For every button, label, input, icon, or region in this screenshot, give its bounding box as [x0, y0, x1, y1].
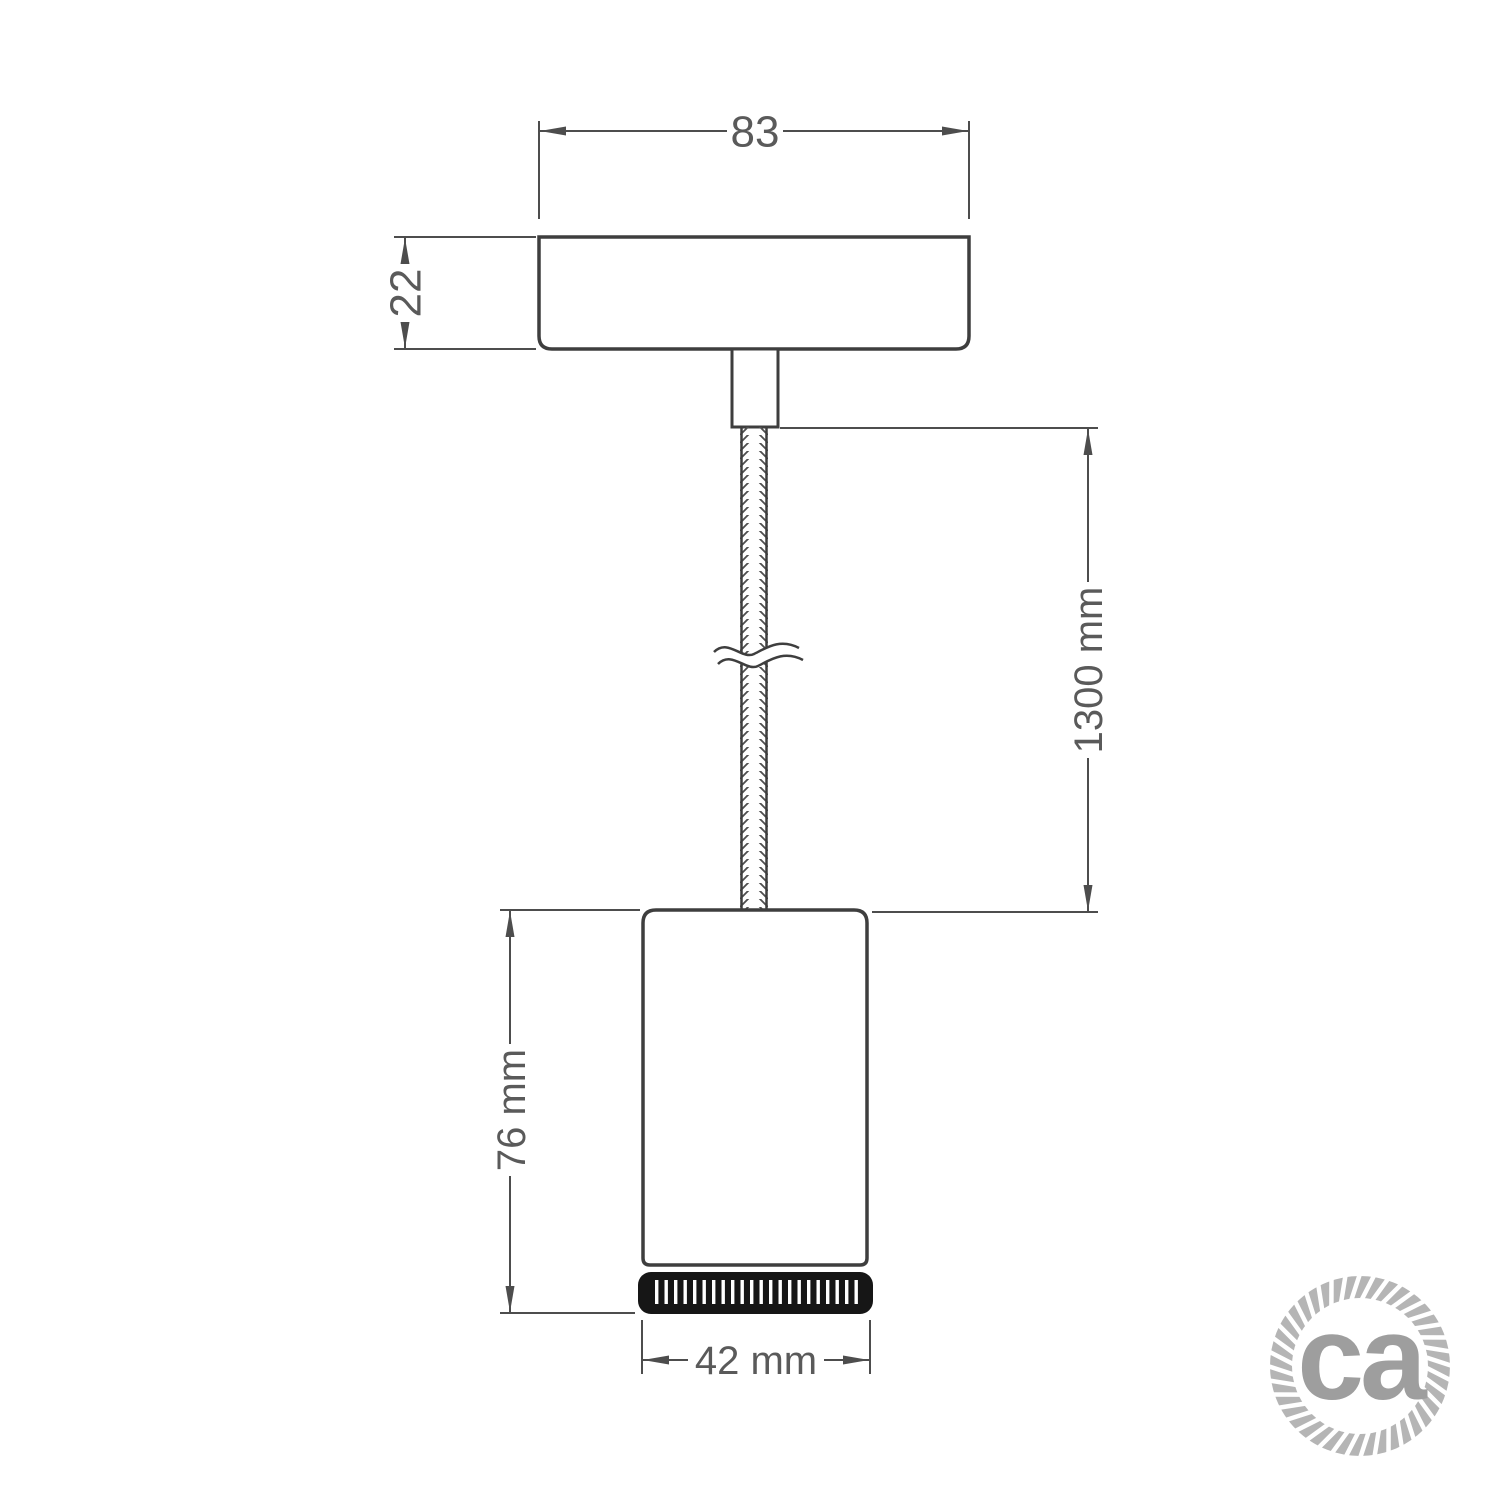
dim-label-canopy-width: 83 [731, 107, 780, 156]
pendant-lamp-dimension-diagram: 83 22 1300 mm 76 mm 42 m [0, 0, 1500, 1500]
dim-label-spotlight-width: 42 mm [695, 1339, 817, 1383]
ceiling-canopy [539, 237, 969, 349]
dim-canopy-height: 22 [381, 237, 536, 349]
logo-text: ca [1297, 1291, 1428, 1425]
dim-cable-length: 1300 mm [780, 428, 1111, 912]
knurled-ring [638, 1272, 873, 1314]
cable-gland [732, 349, 778, 427]
brand-logo: ca [1264, 1270, 1456, 1462]
dim-label-spotlight-height: 76 mm [490, 1049, 534, 1171]
braided-cable [740, 427, 768, 912]
technical-drawing-canvas: 83 22 1300 mm 76 mm 42 m [0, 0, 1500, 1500]
dim-label-cable-length: 1300 mm [1067, 587, 1111, 754]
dim-spotlight-height: 76 mm [490, 910, 640, 1313]
dim-canopy-width: 83 [539, 107, 969, 219]
dim-label-canopy-height: 22 [381, 269, 430, 318]
spotlight-body [643, 910, 867, 1265]
dim-spotlight-width: 42 mm [642, 1320, 870, 1383]
